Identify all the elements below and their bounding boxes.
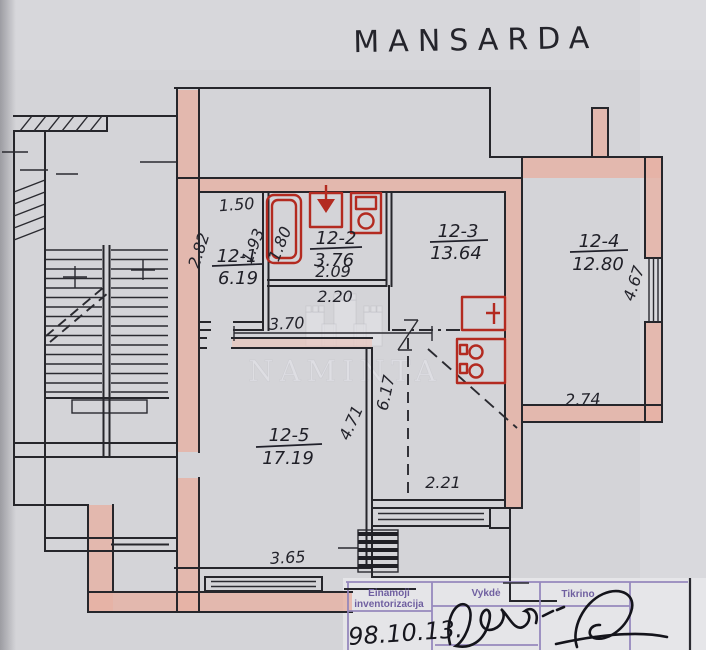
room-area: 13.64: [430, 243, 482, 264]
stamp-col3-header: Tikrino: [561, 589, 594, 600]
page-title: MANSARDA: [353, 21, 598, 60]
room-id: 12-3: [438, 221, 479, 242]
room-id: 12-5: [269, 425, 310, 446]
room-id: 12-4: [579, 231, 620, 252]
dim-3-70: 3.70: [268, 313, 305, 334]
room-area: 6.19: [218, 268, 258, 289]
scanned-floorplan-page: NAMINTA: [0, 0, 706, 650]
stamp-col1-line1: Einamoji: [368, 588, 410, 599]
room-area: 17.19: [262, 448, 314, 469]
dim-2-20: 2.20: [317, 287, 353, 306]
dim-2-09: 2.09: [315, 262, 351, 281]
dim-1-50: 1.50: [218, 194, 255, 215]
watermark-text: NAMINTA: [248, 354, 442, 388]
dim-2-21: 2.21: [425, 473, 461, 492]
dim-3-65: 3.65: [269, 547, 306, 568]
room-id: 12-2: [316, 228, 357, 249]
stamp-col1-line2: inventorizacija: [354, 599, 424, 610]
dim-2-74: 2.74: [565, 389, 601, 409]
stamp-col2-header: Vykdė: [471, 588, 501, 599]
floorplan-svg: NAMINTA: [0, 0, 706, 650]
room-area: 12.80: [572, 254, 624, 275]
